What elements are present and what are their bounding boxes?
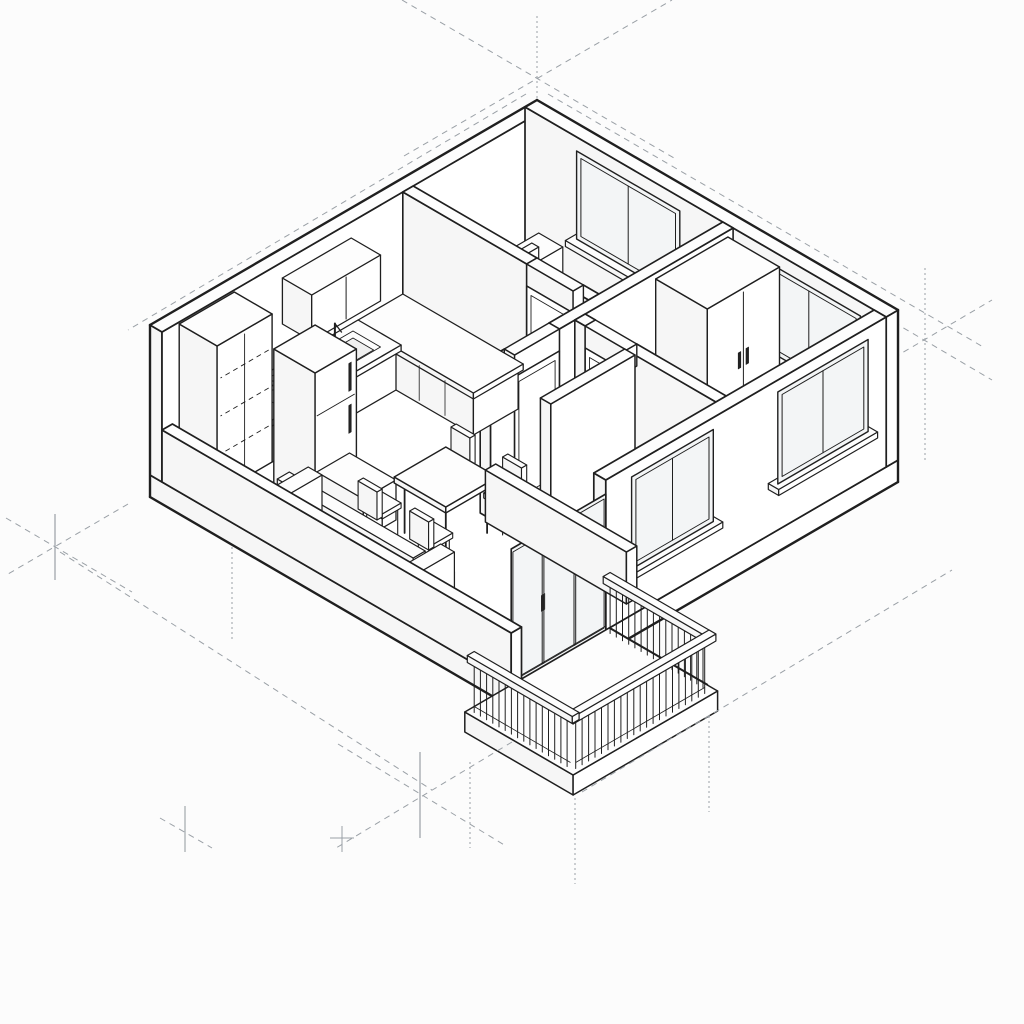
floor-plan-canvas	[0, 0, 1024, 1024]
isometric-floor-plan-drawing	[0, 0, 1024, 1024]
